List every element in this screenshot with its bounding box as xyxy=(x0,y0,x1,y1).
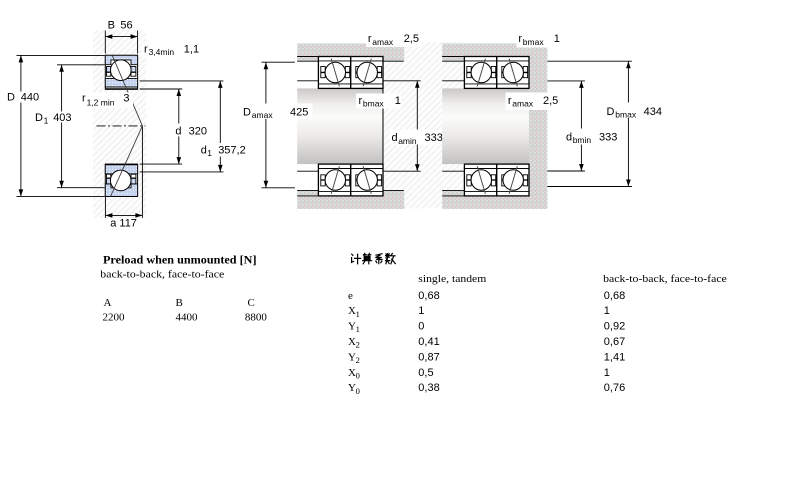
svg-text:back-to-back, face-to-face: back-to-back, face-to-face xyxy=(100,268,224,280)
svg-text:r: r xyxy=(368,33,372,45)
svg-text:4400: 4400 xyxy=(176,311,199,323)
svg-text:320: 320 xyxy=(189,125,207,137)
svg-text:0: 0 xyxy=(356,370,360,380)
svg-text:0,41: 0,41 xyxy=(418,336,439,348)
svg-text:back-to-back, face-to-face: back-to-back, face-to-face xyxy=(603,273,727,285)
svg-text:0,76: 0,76 xyxy=(604,382,625,394)
svg-text:amax: amax xyxy=(372,37,394,47)
svg-text:0: 0 xyxy=(418,321,424,333)
svg-text:amin: amin xyxy=(398,136,417,146)
svg-text:333: 333 xyxy=(599,132,617,144)
svg-text:1: 1 xyxy=(44,115,49,125)
svg-text:403: 403 xyxy=(53,112,71,124)
svg-text:1: 1 xyxy=(554,33,560,45)
svg-text:3: 3 xyxy=(123,93,129,105)
svg-text:D: D xyxy=(7,92,15,104)
svg-text:357,2: 357,2 xyxy=(218,145,246,157)
svg-text:C: C xyxy=(248,297,255,309)
svg-text:2200: 2200 xyxy=(103,311,126,323)
svg-text:117: 117 xyxy=(119,218,137,230)
svg-text:1: 1 xyxy=(604,305,610,317)
svg-text:B: B xyxy=(176,297,183,309)
svg-text:1,1: 1,1 xyxy=(184,44,199,56)
svg-text:440: 440 xyxy=(21,92,39,104)
svg-text:B: B xyxy=(108,20,115,32)
svg-text:0,87: 0,87 xyxy=(418,351,439,363)
svg-text:1: 1 xyxy=(604,367,610,379)
svg-text:r: r xyxy=(82,92,86,104)
svg-text:0,68: 0,68 xyxy=(418,290,439,302)
svg-text:D: D xyxy=(35,112,43,124)
svg-text:r: r xyxy=(359,95,363,107)
svg-text:D: D xyxy=(607,106,615,118)
svg-text:bmax: bmax xyxy=(363,99,385,109)
svg-text:0,5: 0,5 xyxy=(418,367,433,379)
svg-text:3,4min: 3,4min xyxy=(149,47,175,57)
svg-text:d: d xyxy=(175,125,181,137)
svg-text:1,2 min: 1,2 min xyxy=(87,98,115,108)
svg-text:D: D xyxy=(243,106,251,118)
svg-text:r: r xyxy=(518,33,522,45)
svg-text:bmin: bmin xyxy=(573,135,592,145)
svg-text:1: 1 xyxy=(356,309,360,319)
svg-text:r: r xyxy=(508,95,512,107)
svg-text:1: 1 xyxy=(356,324,360,334)
svg-text:amax: amax xyxy=(512,99,534,109)
svg-text:d: d xyxy=(201,145,207,157)
svg-text:bmax: bmax xyxy=(615,109,637,119)
svg-text:single, tandem: single, tandem xyxy=(418,273,486,285)
svg-text:a: a xyxy=(110,218,117,230)
svg-text:bmax: bmax xyxy=(523,37,545,47)
svg-text:8800: 8800 xyxy=(245,311,268,323)
svg-text:1: 1 xyxy=(418,305,424,317)
svg-text:Preload when unmounted [N]: Preload when unmounted [N] xyxy=(103,252,257,266)
svg-text:0,67: 0,67 xyxy=(604,336,625,348)
svg-text:2: 2 xyxy=(356,340,360,350)
svg-text:0: 0 xyxy=(356,386,360,396)
svg-text:amax: amax xyxy=(252,110,274,120)
svg-text:A: A xyxy=(104,297,112,309)
svg-text:2,5: 2,5 xyxy=(404,33,419,45)
svg-text:1,41: 1,41 xyxy=(604,351,625,363)
svg-text:d: d xyxy=(392,132,398,144)
svg-text:1: 1 xyxy=(207,148,212,158)
svg-text:1: 1 xyxy=(395,95,401,107)
svg-text:d: d xyxy=(566,132,572,144)
svg-text:333: 333 xyxy=(425,132,443,144)
svg-text:r: r xyxy=(144,44,148,56)
svg-text:2,5: 2,5 xyxy=(543,95,558,107)
svg-text:434: 434 xyxy=(644,106,662,118)
svg-text:0,38: 0,38 xyxy=(418,382,439,394)
svg-text:e: e xyxy=(348,290,353,302)
svg-text:425: 425 xyxy=(290,106,308,118)
svg-text:2: 2 xyxy=(356,355,360,365)
svg-text:56: 56 xyxy=(120,20,132,32)
svg-text:0,92: 0,92 xyxy=(604,321,625,333)
svg-text:0,68: 0,68 xyxy=(604,290,625,302)
